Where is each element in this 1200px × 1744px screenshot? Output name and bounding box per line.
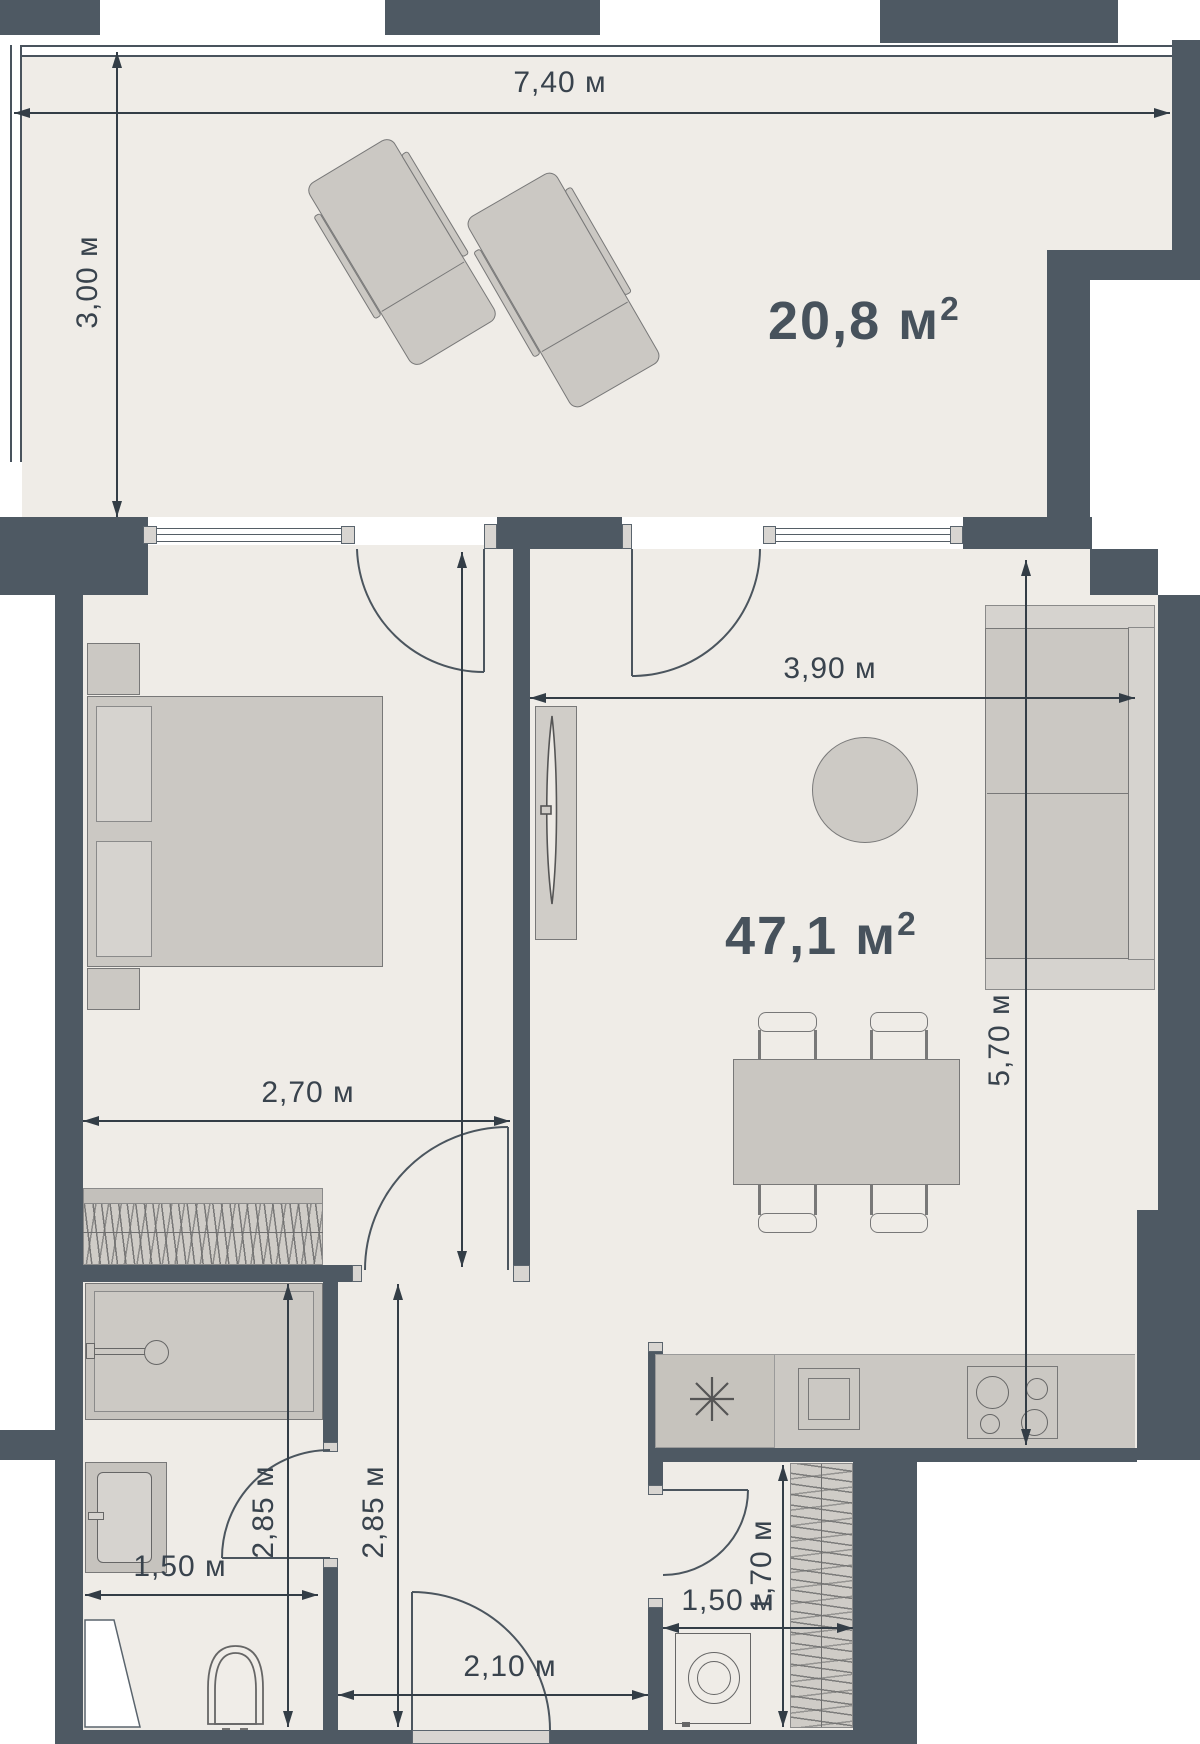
dimension-label: 3,90 м: [730, 652, 930, 686]
arrowhead: [1021, 1429, 1031, 1445]
wall-bottom-right: [550, 1730, 917, 1744]
arrowhead: [1154, 108, 1170, 118]
nightstand: [87, 643, 140, 695]
terrace-glazing-top: [10, 45, 1172, 57]
wall-right-upper: [1158, 595, 1200, 1210]
shower-arm: [93, 1348, 146, 1355]
door-jamb: [323, 1442, 338, 1452]
burner: [980, 1414, 1000, 1434]
arrowhead: [393, 1711, 403, 1727]
door-jamb: [648, 1485, 663, 1495]
door-jamb: [352, 1265, 362, 1282]
arrowhead: [1021, 560, 1031, 576]
burner: [976, 1376, 1009, 1409]
wall-top-left-pier: [0, 517, 148, 595]
arrowhead: [457, 1251, 467, 1267]
living-window: [763, 524, 963, 546]
dimension-label: 1,50 м: [628, 1584, 828, 1618]
wall-terrace-right: [1172, 40, 1200, 280]
wall-dressing-bottom: [83, 1265, 352, 1282]
arrowhead: [83, 1116, 99, 1126]
arrowhead: [85, 1590, 101, 1600]
wall-right-lower: [1137, 1210, 1200, 1460]
nightstand: [87, 968, 140, 1010]
dimension-line: [782, 1465, 784, 1727]
dimension-line: [461, 552, 463, 1267]
dimension-label: 7,40 м: [460, 66, 660, 100]
wall-bottom-left: [55, 1730, 412, 1744]
dimension-line: [663, 1627, 853, 1629]
arrowhead: [283, 1711, 293, 1727]
arrowhead: [778, 1711, 788, 1727]
shower-bracket: [86, 1343, 95, 1359]
arrowhead: [837, 1623, 853, 1633]
exterior-block: [0, 0, 100, 35]
oven-door: [808, 1378, 850, 1420]
arrowhead: [302, 1590, 318, 1600]
area-unit: м: [898, 291, 940, 351]
wall-bathroom-right-upper: [323, 1282, 338, 1442]
wall-bedroom-living-divider: [513, 549, 530, 1265]
entrance-threshold: [412, 1730, 550, 1744]
dimension-line: [1025, 560, 1027, 1445]
wardrobe: [83, 1188, 323, 1265]
dimension-label: 2,85 м: [247, 1465, 281, 1558]
wall-left-pier: [0, 1430, 55, 1460]
pillow: [96, 706, 152, 822]
rug: [812, 737, 918, 843]
wall-kitchen-bottom: [648, 1448, 1137, 1462]
bedroom-hall-doorway-floor: [352, 1265, 513, 1282]
dimension-line: [83, 1120, 510, 1122]
dimension-line: [397, 1284, 399, 1727]
dimension-line: [338, 1694, 648, 1696]
bedroom-window: [143, 524, 355, 546]
dimension-line: [14, 112, 1170, 114]
sofa: [985, 605, 1155, 990]
wall-top-right: [963, 517, 1092, 549]
area-unit: м: [855, 906, 897, 966]
arrowhead: [457, 552, 467, 568]
burner: [1026, 1378, 1048, 1400]
dimension-line: [116, 52, 118, 517]
arrowhead: [112, 501, 122, 517]
door-jamb: [323, 1558, 338, 1568]
dimension-line: [85, 1594, 318, 1596]
arrowhead: [663, 1623, 679, 1633]
arrowhead: [14, 108, 30, 118]
exterior-block: [385, 0, 600, 35]
washing-machine: [675, 1633, 751, 1724]
wall-laundry-right: [853, 1462, 917, 1730]
bathroom-doorway-floor: [323, 1452, 338, 1568]
arrowhead: [393, 1284, 403, 1300]
terrace-area-label: 20,8 м2: [768, 290, 961, 352]
dimension-label: 3,00 м: [71, 235, 105, 328]
wall-terrace-step: [1047, 250, 1200, 280]
dining-table: [733, 1059, 960, 1185]
living-floor-top: [530, 549, 1090, 595]
dimension-label: 1,50 м: [80, 1550, 280, 1584]
floor-plan: 7,40 м 3,00 м 3,90 м 5,70 м 2,70 м 2,85 …: [0, 0, 1200, 1744]
chair: [755, 1008, 820, 1059]
dimension-label: 2,70 м: [208, 1076, 408, 1110]
dimension-line: [287, 1284, 289, 1727]
area-value: 47,1: [725, 906, 838, 966]
laundry-doorway-floor: [648, 1495, 663, 1598]
chair: [867, 1008, 931, 1059]
exterior-block: [880, 0, 1118, 43]
area-sup: 2: [940, 291, 961, 328]
arrowhead: [283, 1284, 293, 1300]
arrowhead: [338, 1690, 354, 1700]
living-area-label: 47,1 м2: [725, 905, 918, 967]
wall-left: [55, 595, 83, 1730]
door-jamb: [622, 524, 632, 549]
arrowhead: [778, 1465, 788, 1481]
pillow: [96, 841, 152, 957]
tv-stand: [535, 706, 577, 940]
wall-living-corner: [1090, 549, 1158, 595]
area-value: 20,8: [768, 291, 881, 351]
arrowhead: [632, 1690, 648, 1700]
door-jamb: [513, 1265, 530, 1282]
arrowhead: [494, 1116, 510, 1126]
dimension-label: 1,70 м: [745, 1519, 779, 1612]
arrowhead: [530, 693, 546, 703]
arrowhead: [1119, 693, 1135, 703]
dimension-label: 2,85 м: [357, 1465, 391, 1558]
wall-top-center-block: [497, 517, 622, 549]
faucet: [88, 1512, 104, 1520]
wall-bathroom-right-lower: [323, 1568, 338, 1730]
arrowhead: [112, 52, 122, 68]
door-jamb: [484, 524, 497, 549]
area-sup: 2: [897, 906, 918, 943]
door-jamb: [648, 1342, 663, 1352]
shower-head: [144, 1340, 169, 1365]
kitchen-sink-module: [655, 1354, 775, 1448]
wall-terrace-column: [1047, 280, 1090, 549]
dimension-label: 2,10 м: [400, 1650, 620, 1684]
terrace-floor-right: [1047, 57, 1172, 250]
dimension-line: [530, 697, 1135, 699]
chair: [867, 1185, 931, 1237]
chair: [755, 1185, 820, 1237]
dimension-label: 5,70 м: [983, 993, 1017, 1086]
